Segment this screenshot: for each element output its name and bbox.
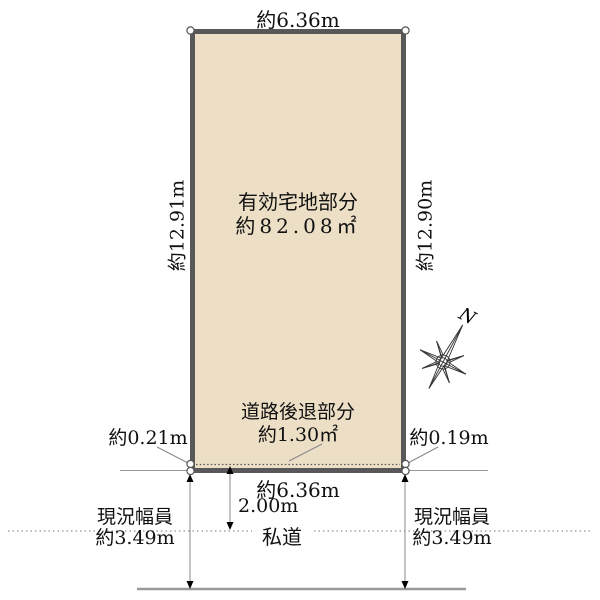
setback-distance-arrow-down xyxy=(227,522,234,530)
right-road-width-line1: 現況幅員 xyxy=(392,507,512,528)
right-offset-label: 約0.19m xyxy=(389,423,509,450)
top-width-label: 約6.36m xyxy=(190,4,406,33)
effective-lot-label: 有効宅地部分 約82.08㎡ xyxy=(196,190,400,238)
effective-lot-label-line2: 約82.08㎡ xyxy=(196,214,400,238)
left-road-width-arrow-down xyxy=(187,581,194,589)
road-setback-label-line1: 道路後退部分 xyxy=(196,401,400,424)
left-road-width-label: 現況幅員 約3.49m xyxy=(75,507,195,549)
left-offset-label: 約0.21m xyxy=(88,423,208,450)
effective-lot-label-line1: 有効宅地部分 xyxy=(196,190,400,214)
compass-north-icon: N xyxy=(400,308,495,408)
left-road-width-line1: 現況幅員 xyxy=(75,507,195,528)
right-road-width-arrow-down xyxy=(402,581,409,589)
road-setback-distance-label: 2.00m xyxy=(238,495,298,517)
land-plot-diagram: N 約6.36m 約12.91m 約12.90m 有効宅地部分 約82.08㎡ … xyxy=(0,0,600,600)
left-road-width-line2: 約3.49m xyxy=(75,528,195,549)
road-setback-label-line2: 約1.30㎡ xyxy=(196,424,400,447)
road-setback-label: 道路後退部分 約1.30㎡ xyxy=(196,401,400,447)
compass-north-label: N xyxy=(454,308,480,330)
road-name-label: 私道 xyxy=(252,521,312,550)
right-road-width-label: 現況幅員 約3.49m xyxy=(392,507,512,549)
right-road-width-line2: 約3.49m xyxy=(392,528,512,549)
left-length-label: 約12.91m xyxy=(163,166,190,286)
right-length-label: 約12.90m xyxy=(411,166,438,286)
